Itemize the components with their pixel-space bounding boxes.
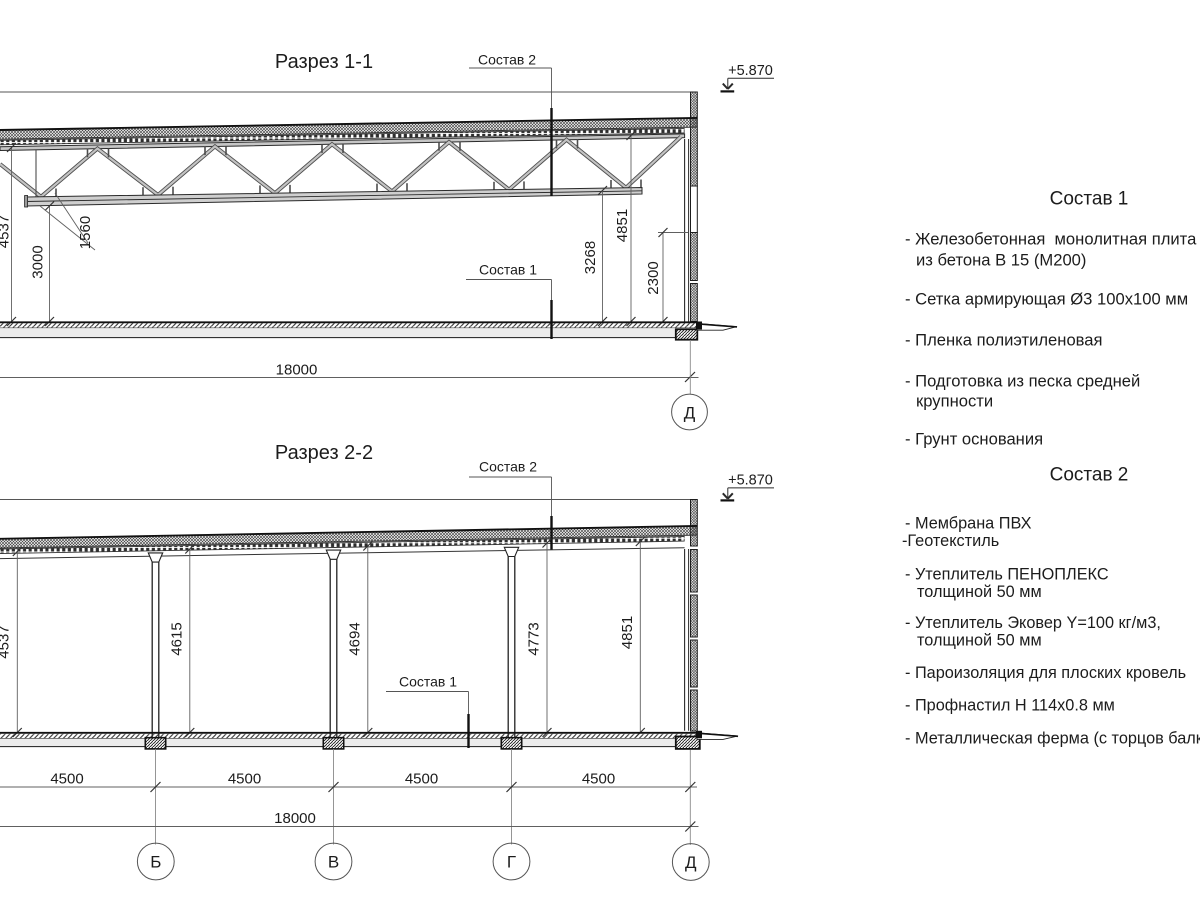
svg-text:18000: 18000 xyxy=(276,362,318,379)
svg-text:Состав 1: Состав 1 xyxy=(479,262,537,278)
svg-text:- Железобетонная монолитная п: - Железобетонная монолитная плита xyxy=(905,230,1197,249)
svg-text:18000: 18000 xyxy=(274,810,316,827)
svg-text:- Утеплитель Эковер Y=100 кг/м: - Утеплитель Эковер Y=100 кг/м3, xyxy=(905,614,1161,632)
svg-text:толщиной 50 мм: толщиной 50 мм xyxy=(917,583,1042,601)
svg-text:4694: 4694 xyxy=(347,622,364,655)
svg-text:4851: 4851 xyxy=(614,209,631,242)
svg-text:4773: 4773 xyxy=(526,622,543,655)
svg-text:+5.870: +5.870 xyxy=(728,473,773,489)
svg-text:4537: 4537 xyxy=(0,215,13,248)
svg-text:- Утеплитель ПЕНОПЛЕКС: - Утеплитель ПЕНОПЛЕКС xyxy=(905,566,1109,584)
svg-text:Разрез 2-2: Разрез 2-2 xyxy=(275,442,373,464)
svg-text:3000: 3000 xyxy=(30,245,47,278)
svg-text:- Грунт основания: - Грунт основания xyxy=(905,430,1043,449)
svg-text:4537: 4537 xyxy=(0,625,13,658)
svg-text:В: В xyxy=(328,853,339,872)
svg-text:3268: 3268 xyxy=(582,241,599,274)
svg-text:- Профнастил Н 114х0.8 мм: - Профнастил Н 114х0.8 мм xyxy=(905,697,1115,715)
svg-text:- Сетка армирующая Ø3 100х100: - Сетка армирующая Ø3 100х100 мм xyxy=(905,290,1188,309)
svg-text:4615: 4615 xyxy=(169,622,186,655)
svg-text:Д: Д xyxy=(684,403,696,422)
svg-text:Г: Г xyxy=(507,853,516,872)
svg-text:Состав 2: Состав 2 xyxy=(1050,465,1129,486)
svg-text:Разрез 1-1: Разрез 1-1 xyxy=(275,51,373,73)
svg-text:- Подготовка из песка средней: - Подготовка из песка средней xyxy=(905,372,1140,391)
svg-text:- Металлическая ферма (с торцо: - Металлическая ферма (с торцов балк xyxy=(905,730,1200,748)
svg-text:1560: 1560 xyxy=(77,216,94,249)
svg-text:- Пленка полиэтиленовая: - Пленка полиэтиленовая xyxy=(905,331,1103,350)
svg-text:4500: 4500 xyxy=(50,771,83,788)
svg-text:из бетона В 15 (М200): из бетона В 15 (М200) xyxy=(916,251,1086,270)
svg-text:4500: 4500 xyxy=(228,771,261,788)
svg-text:крупности: крупности xyxy=(916,392,993,411)
svg-text:Состав 1: Состав 1 xyxy=(399,674,457,690)
svg-text:Состав 2: Состав 2 xyxy=(478,52,536,68)
svg-text:2300: 2300 xyxy=(645,261,662,294)
svg-text:4851: 4851 xyxy=(619,616,636,649)
svg-text:4500: 4500 xyxy=(582,771,615,788)
svg-text:Д: Д xyxy=(685,853,697,872)
svg-text:-Геотекстиль: -Геотекстиль xyxy=(902,532,999,550)
svg-text:толщиной 50 мм: толщиной 50 мм xyxy=(917,632,1042,650)
svg-text:- Мембрана ПВХ: - Мембрана ПВХ xyxy=(905,515,1032,533)
svg-text:4500: 4500 xyxy=(405,771,438,788)
svg-text:+5.870: +5.870 xyxy=(728,63,773,79)
svg-text:- Пароизоляция для плоских кро: - Пароизоляция для плоских кровель xyxy=(905,664,1186,682)
svg-text:Б: Б xyxy=(150,853,161,872)
svg-text:Состав 2: Состав 2 xyxy=(479,459,537,475)
svg-text:Состав 1: Состав 1 xyxy=(1050,189,1129,210)
